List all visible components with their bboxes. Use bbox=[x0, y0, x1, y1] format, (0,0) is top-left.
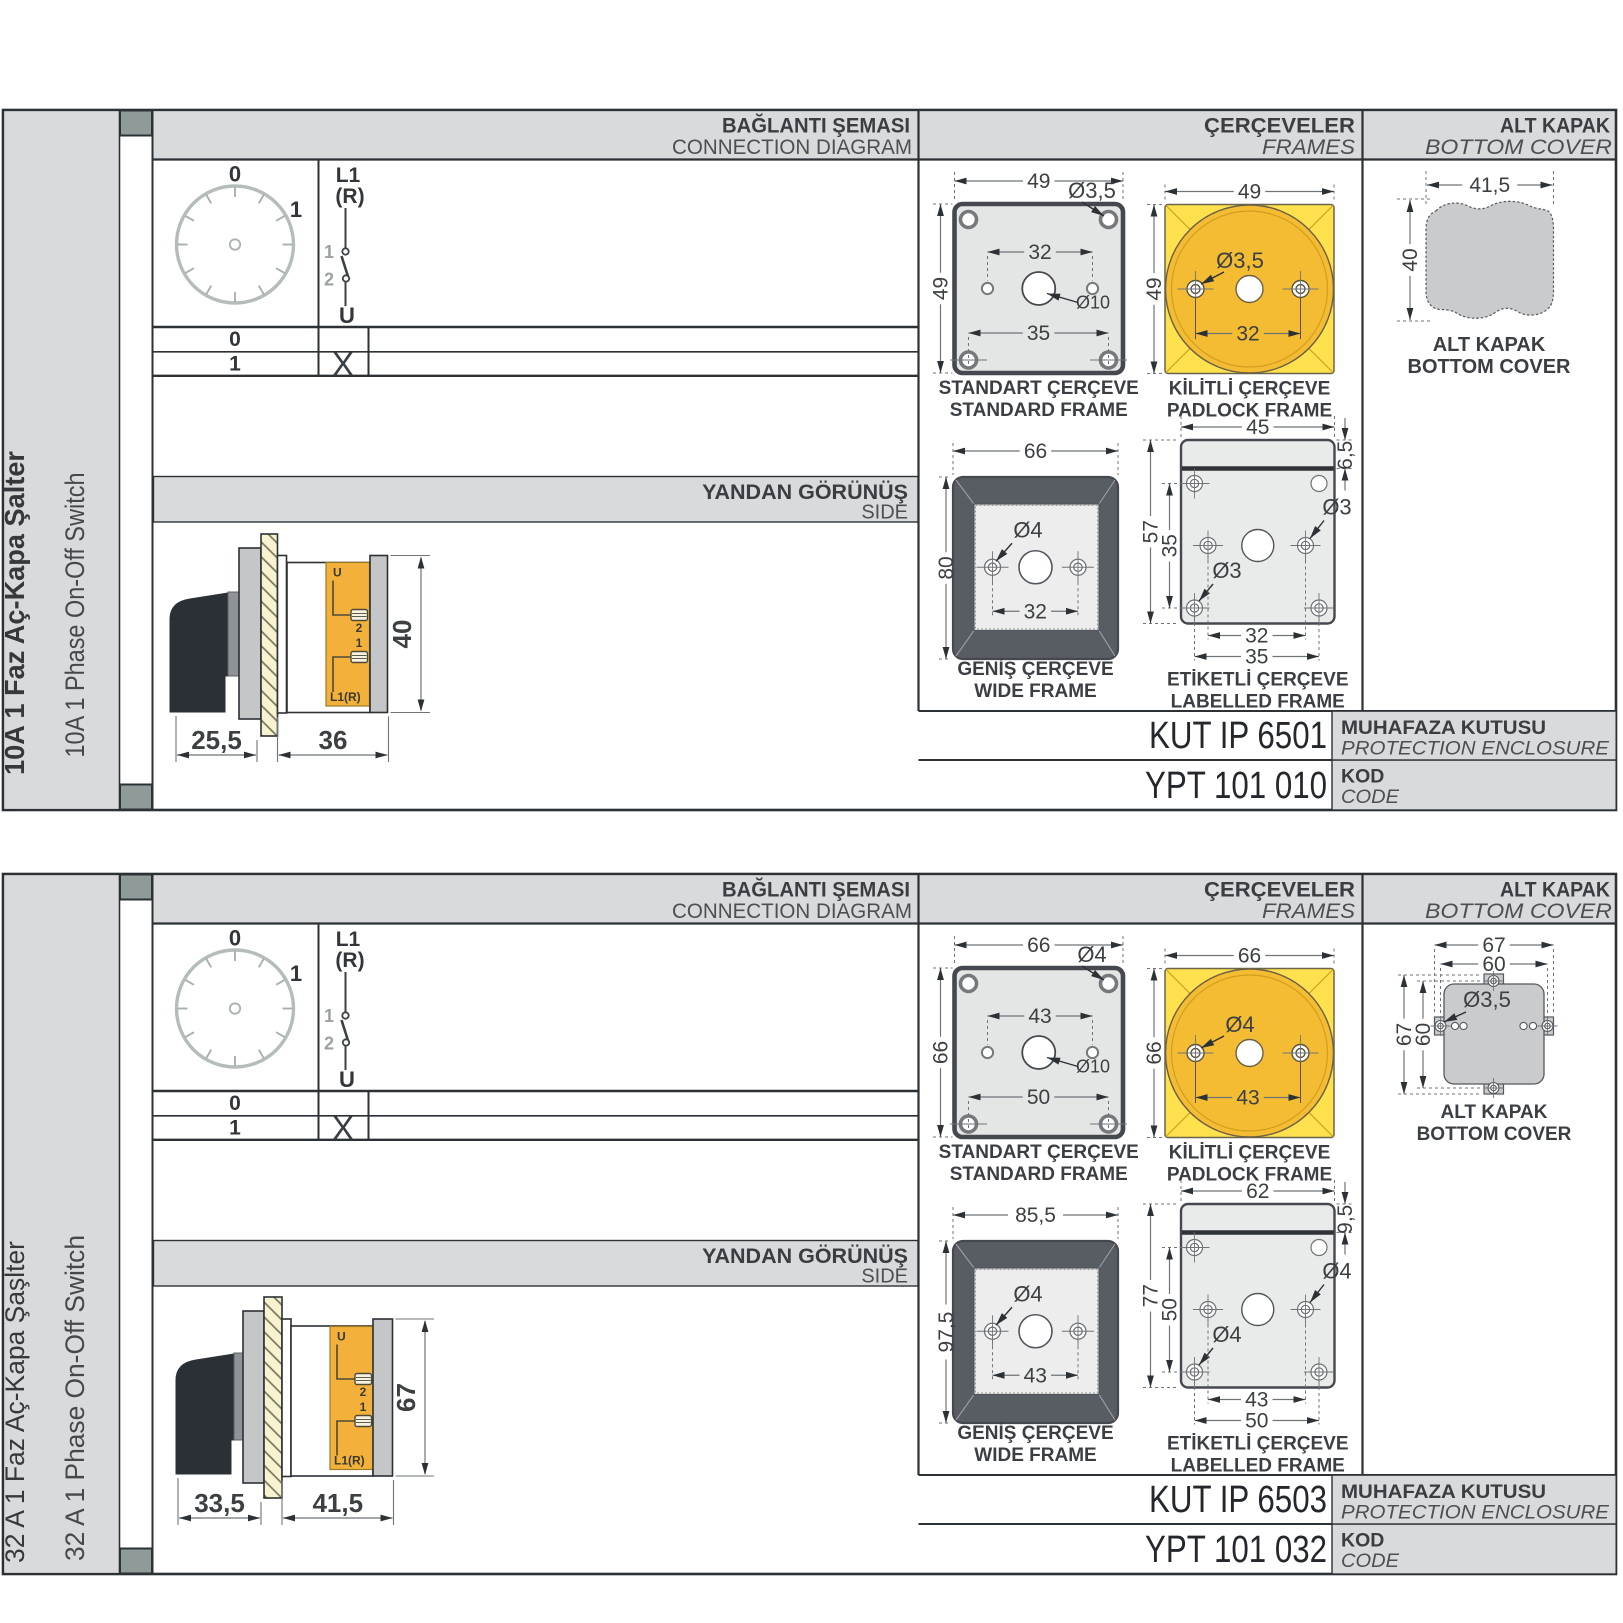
svg-text:41,5: 41,5 bbox=[1469, 174, 1510, 197]
svg-text:YANDAN GÖRÜNÜŞ: YANDAN GÖRÜNÜŞ bbox=[702, 1243, 908, 1268]
svg-text:L1(R): L1(R) bbox=[334, 1454, 365, 1468]
svg-text:FRAMES: FRAMES bbox=[1262, 900, 1355, 923]
svg-text:66: 66 bbox=[1027, 934, 1050, 957]
svg-text:32: 32 bbox=[1028, 241, 1051, 264]
svg-text:62: 62 bbox=[1246, 1180, 1269, 1203]
svg-text:49: 49 bbox=[1143, 277, 1166, 300]
svg-text:Ø3: Ø3 bbox=[1322, 495, 1351, 520]
svg-text:1: 1 bbox=[229, 1117, 241, 1140]
svg-text:WIDE FRAME: WIDE FRAME bbox=[974, 681, 1096, 702]
svg-text:60: 60 bbox=[1482, 953, 1505, 976]
svg-text:0: 0 bbox=[229, 926, 241, 951]
svg-text:LABELLED FRAME: LABELLED FRAME bbox=[1171, 1456, 1345, 1477]
svg-text:YANDAN GÖRÜNÜŞ: YANDAN GÖRÜNÜŞ bbox=[702, 479, 908, 504]
svg-text:U: U bbox=[339, 303, 355, 328]
svg-text:(R): (R) bbox=[335, 185, 364, 208]
svg-text:GENİŞ ÇERÇEVE: GENİŞ ÇERÇEVE bbox=[957, 1423, 1113, 1444]
svg-text:1: 1 bbox=[324, 242, 334, 262]
svg-text:KİLİTLİ ÇERÇEVE: KİLİTLİ ÇERÇEVE bbox=[1169, 379, 1331, 400]
svg-text:STANDART ÇERÇEVE: STANDART ÇERÇEVE bbox=[939, 378, 1139, 399]
svg-text:KOD: KOD bbox=[1341, 766, 1384, 788]
svg-text:SIDE: SIDE bbox=[861, 1266, 908, 1288]
svg-text:STANDARD FRAME: STANDARD FRAME bbox=[950, 1164, 1128, 1185]
svg-text:2: 2 bbox=[360, 1385, 367, 1399]
svg-text:X: X bbox=[332, 346, 354, 383]
svg-text:0: 0 bbox=[229, 328, 241, 351]
svg-text:ALT KAPAK: ALT KAPAK bbox=[1441, 1102, 1548, 1123]
svg-text:BAĞLANTI ŞEMASI: BAĞLANTI ŞEMASI bbox=[722, 877, 910, 902]
svg-text:PROTECTION ENCLOSURE: PROTECTION ENCLOSURE bbox=[1341, 738, 1610, 760]
svg-text:49: 49 bbox=[930, 277, 953, 300]
svg-text:ALT KAPAK: ALT KAPAK bbox=[1500, 114, 1610, 138]
svg-text:MUHAFAZA KUTUSU: MUHAFAZA KUTUSU bbox=[1341, 717, 1546, 739]
svg-text:1: 1 bbox=[324, 1006, 334, 1026]
svg-text:Ø3,5: Ø3,5 bbox=[1216, 248, 1264, 273]
svg-text:CONNECTION DIAGRAM: CONNECTION DIAGRAM bbox=[672, 136, 912, 159]
svg-text:L1(R): L1(R) bbox=[330, 690, 361, 704]
svg-text:KUT IP 6503: KUT IP 6503 bbox=[1149, 1479, 1327, 1521]
svg-text:2: 2 bbox=[356, 621, 363, 635]
svg-text:32: 32 bbox=[1236, 323, 1259, 346]
svg-text:ETİKETLİ ÇERÇEVE: ETİKETLİ ÇERÇEVE bbox=[1167, 670, 1349, 691]
svg-text:2: 2 bbox=[324, 1034, 334, 1054]
svg-text:97,5: 97,5 bbox=[935, 1312, 958, 1353]
svg-text:ETİKETLİ ÇERÇEVE: ETİKETLİ ÇERÇEVE bbox=[1167, 1434, 1349, 1455]
svg-text:36: 36 bbox=[319, 725, 348, 755]
svg-text:49: 49 bbox=[1027, 170, 1050, 193]
svg-text:Ø10: Ø10 bbox=[1076, 1057, 1110, 1077]
svg-text:1: 1 bbox=[290, 961, 302, 986]
svg-text:BOTTOM COVER: BOTTOM COVER bbox=[1408, 356, 1572, 378]
svg-text:10A 1 Phase On-Off Switch: 10A 1 Phase On-Off Switch bbox=[60, 473, 90, 758]
svg-text:0: 0 bbox=[229, 1092, 241, 1115]
svg-text:6,5: 6,5 bbox=[1334, 441, 1357, 470]
svg-text:66: 66 bbox=[1024, 440, 1047, 463]
svg-text:BOTTOM COVER: BOTTOM COVER bbox=[1425, 136, 1612, 159]
svg-text:Ø10: Ø10 bbox=[1076, 293, 1110, 313]
svg-text:U: U bbox=[339, 1067, 355, 1092]
svg-text:35: 35 bbox=[1159, 534, 1182, 557]
svg-text:GENİŞ ÇERÇEVE: GENİŞ ÇERÇEVE bbox=[957, 659, 1113, 680]
svg-text:33,5: 33,5 bbox=[194, 1488, 245, 1518]
svg-text:49: 49 bbox=[1238, 181, 1261, 204]
svg-text:SIDE: SIDE bbox=[861, 502, 908, 524]
svg-text:50: 50 bbox=[1027, 1086, 1050, 1109]
svg-text:Ø4: Ø4 bbox=[1225, 1012, 1254, 1037]
svg-text:Ø4: Ø4 bbox=[1013, 517, 1042, 542]
svg-text:50: 50 bbox=[1159, 1298, 1182, 1321]
svg-text:43: 43 bbox=[1245, 1389, 1268, 1412]
svg-text:35: 35 bbox=[1027, 322, 1050, 345]
svg-text:Ø3: Ø3 bbox=[1212, 558, 1241, 583]
svg-text:CONNECTION DIAGRAM: CONNECTION DIAGRAM bbox=[672, 900, 912, 923]
svg-text:43: 43 bbox=[1236, 1087, 1259, 1110]
svg-text:35: 35 bbox=[1245, 646, 1268, 669]
svg-text:STANDART ÇERÇEVE: STANDART ÇERÇEVE bbox=[939, 1142, 1139, 1163]
svg-text:10A 1 Faz Aç-Kapa Şalter: 10A 1 Faz Aç-Kapa Şalter bbox=[0, 451, 30, 775]
svg-text:1: 1 bbox=[360, 1400, 367, 1414]
svg-text:KOD: KOD bbox=[1341, 1530, 1384, 1552]
svg-text:STANDARD FRAME: STANDARD FRAME bbox=[950, 400, 1128, 421]
svg-text:WIDE FRAME: WIDE FRAME bbox=[974, 1445, 1096, 1466]
svg-text:Ø3,5: Ø3,5 bbox=[1068, 178, 1116, 203]
svg-text:CODE: CODE bbox=[1341, 1550, 1400, 1572]
svg-text:BAĞLANTI ŞEMASI: BAĞLANTI ŞEMASI bbox=[722, 113, 910, 138]
svg-text:1: 1 bbox=[229, 353, 241, 376]
svg-text:L1: L1 bbox=[336, 928, 361, 951]
svg-text:Ø4: Ø4 bbox=[1322, 1259, 1351, 1284]
svg-text:U: U bbox=[337, 1330, 346, 1344]
svg-text:60: 60 bbox=[1412, 1023, 1435, 1046]
svg-text:MUHAFAZA KUTUSU: MUHAFAZA KUTUSU bbox=[1341, 1481, 1546, 1503]
svg-text:KUT IP 6501: KUT IP 6501 bbox=[1149, 715, 1327, 757]
svg-text:32: 32 bbox=[1024, 600, 1047, 623]
svg-text:LABELLED FRAME: LABELLED FRAME bbox=[1171, 692, 1345, 713]
svg-text:BOTTOM COVER: BOTTOM COVER bbox=[1425, 900, 1612, 923]
svg-text:2: 2 bbox=[324, 270, 334, 290]
svg-text:FRAMES: FRAMES bbox=[1262, 136, 1355, 159]
svg-text:40: 40 bbox=[387, 620, 417, 649]
svg-text:CODE: CODE bbox=[1341, 786, 1400, 808]
svg-text:66: 66 bbox=[1143, 1041, 1166, 1064]
svg-text:43: 43 bbox=[1028, 1005, 1051, 1028]
svg-text:YPT 101 032: YPT 101 032 bbox=[1145, 1529, 1327, 1571]
svg-text:32: 32 bbox=[1245, 625, 1268, 648]
svg-text:40: 40 bbox=[1399, 248, 1422, 271]
svg-text:67: 67 bbox=[391, 1383, 421, 1412]
svg-text:32 A 1 Phase On-Off Switch: 32 A 1 Phase On-Off Switch bbox=[60, 1235, 90, 1561]
svg-text:66: 66 bbox=[1238, 945, 1261, 968]
svg-text:32 A 1 Faz Aç-Kapa Şaşlter: 32 A 1 Faz Aç-Kapa Şaşlter bbox=[0, 1241, 30, 1563]
svg-text:1: 1 bbox=[290, 197, 302, 222]
svg-text:ALT KAPAK: ALT KAPAK bbox=[1433, 334, 1546, 356]
svg-text:PROTECTION ENCLOSURE: PROTECTION ENCLOSURE bbox=[1341, 1502, 1610, 1524]
svg-text:ÇERÇEVELER: ÇERÇEVELER bbox=[1204, 114, 1355, 138]
svg-text:X: X bbox=[332, 1110, 354, 1147]
svg-text:L1: L1 bbox=[336, 164, 361, 187]
svg-text:(R): (R) bbox=[335, 949, 364, 972]
svg-text:Ø4: Ø4 bbox=[1212, 1322, 1241, 1347]
svg-text:BOTTOM COVER: BOTTOM COVER bbox=[1417, 1124, 1572, 1145]
svg-text:41,5: 41,5 bbox=[312, 1488, 363, 1518]
svg-text:25,5: 25,5 bbox=[191, 725, 242, 755]
svg-text:43: 43 bbox=[1024, 1364, 1047, 1387]
svg-text:ALT KAPAK: ALT KAPAK bbox=[1500, 878, 1610, 902]
svg-text:U: U bbox=[333, 566, 342, 580]
svg-text:66: 66 bbox=[930, 1041, 953, 1064]
svg-text:ÇERÇEVELER: ÇERÇEVELER bbox=[1204, 878, 1355, 902]
svg-text:KİLİTLİ ÇERÇEVE: KİLİTLİ ÇERÇEVE bbox=[1169, 1143, 1331, 1164]
svg-text:Ø4: Ø4 bbox=[1013, 1281, 1042, 1306]
svg-text:50: 50 bbox=[1245, 1410, 1268, 1433]
svg-text:YPT 101 010: YPT 101 010 bbox=[1145, 765, 1327, 807]
svg-text:0: 0 bbox=[229, 162, 241, 187]
svg-text:9,5: 9,5 bbox=[1334, 1205, 1357, 1234]
svg-text:85,5: 85,5 bbox=[1015, 1204, 1056, 1227]
svg-text:Ø3,5: Ø3,5 bbox=[1463, 987, 1511, 1012]
svg-text:Ø4: Ø4 bbox=[1077, 942, 1106, 967]
svg-text:80: 80 bbox=[935, 556, 958, 579]
svg-text:45: 45 bbox=[1246, 416, 1269, 439]
svg-text:1: 1 bbox=[356, 636, 363, 650]
